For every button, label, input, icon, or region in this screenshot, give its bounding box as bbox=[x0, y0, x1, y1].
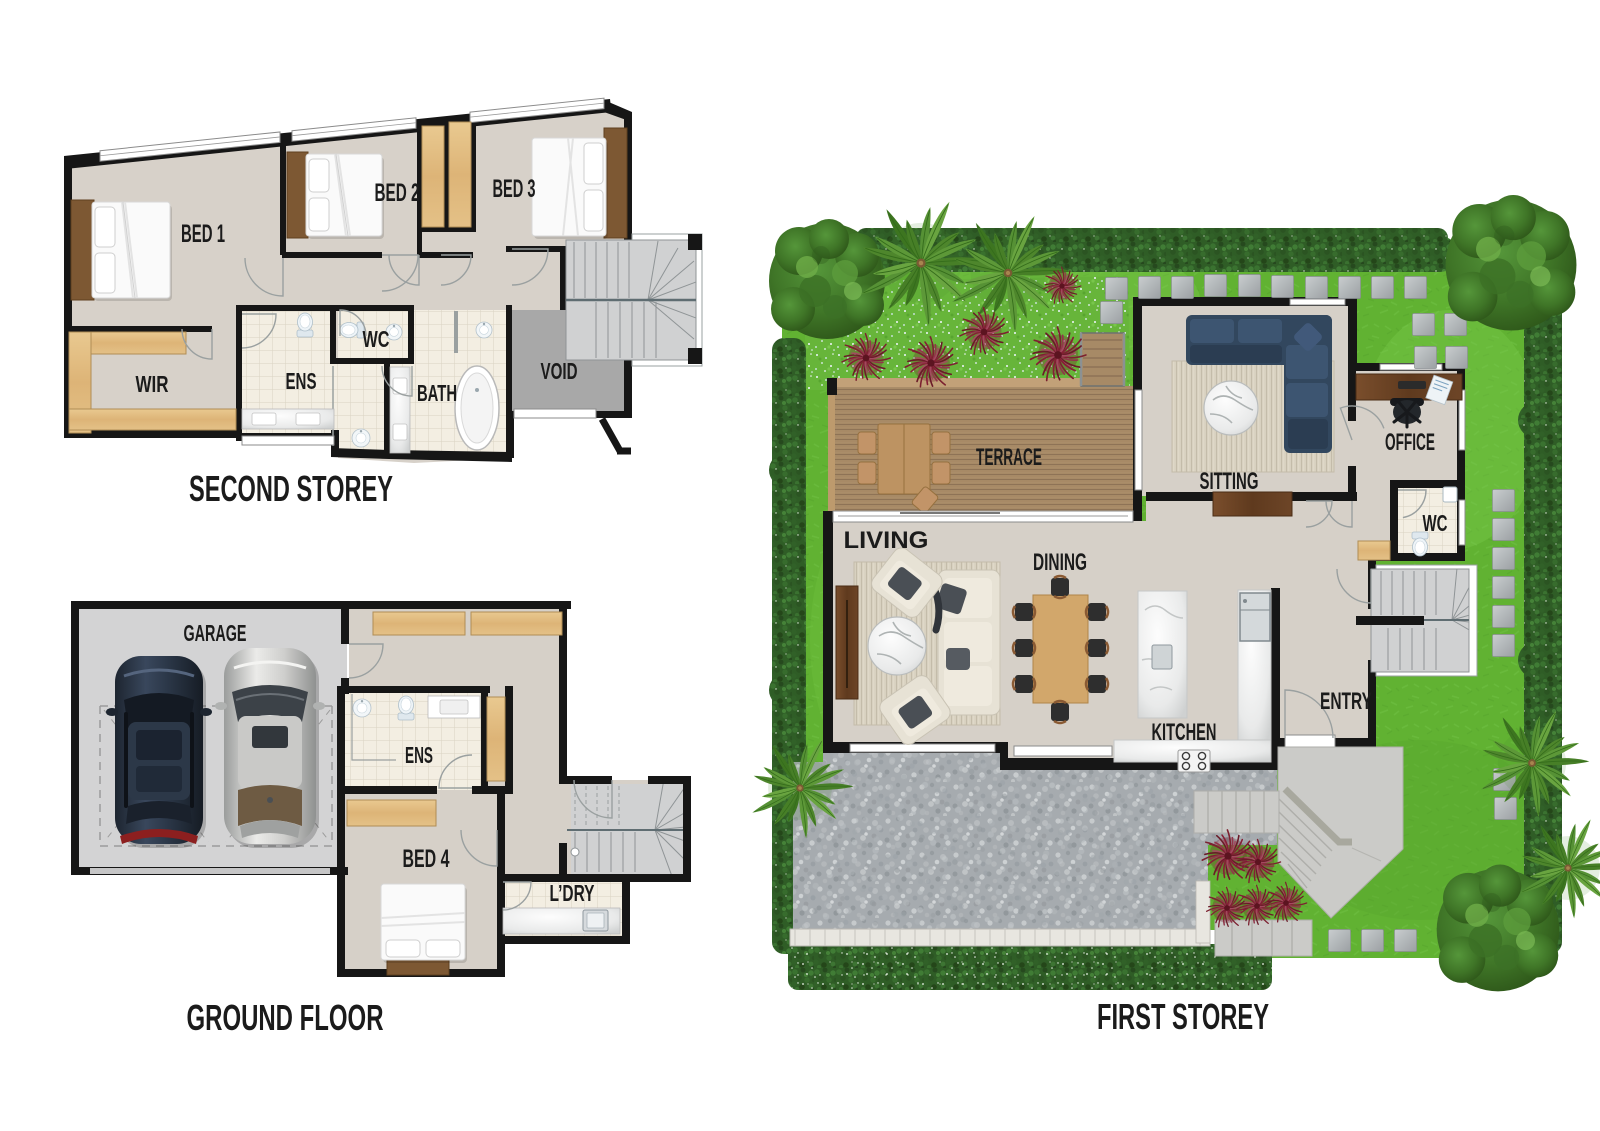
svg-text:BATH: BATH bbox=[417, 380, 457, 406]
svg-text:SITTING: SITTING bbox=[1200, 468, 1259, 495]
svg-text:WC: WC bbox=[363, 326, 390, 352]
svg-text:WIR: WIR bbox=[136, 371, 169, 397]
svg-text:OFFICE: OFFICE bbox=[1385, 429, 1435, 456]
svg-text:L’DRY: L’DRY bbox=[550, 880, 595, 906]
svg-text:TERRACE: TERRACE bbox=[976, 444, 1042, 471]
svg-text:ENS: ENS bbox=[286, 368, 317, 394]
svg-text:BED 3: BED 3 bbox=[493, 175, 536, 203]
svg-text:BED 2: BED 2 bbox=[375, 179, 420, 207]
svg-text:BED 4: BED 4 bbox=[403, 845, 450, 873]
svg-text:WC: WC bbox=[1423, 510, 1448, 536]
svg-text:VOID: VOID bbox=[541, 358, 578, 384]
svg-text:BED 1: BED 1 bbox=[181, 220, 225, 248]
svg-text:ENS: ENS bbox=[405, 742, 433, 768]
svg-text:LIVING: LIVING bbox=[844, 527, 929, 554]
svg-text:SECOND STOREY: SECOND STOREY bbox=[189, 468, 393, 509]
svg-text:GARAGE: GARAGE bbox=[184, 620, 247, 646]
svg-text:KITCHEN: KITCHEN bbox=[1152, 719, 1217, 746]
svg-text:ENTRY: ENTRY bbox=[1320, 688, 1372, 715]
svg-text:GROUND FLOOR: GROUND FLOOR bbox=[187, 997, 384, 1038]
svg-text:FIRST STOREY: FIRST STOREY bbox=[1097, 996, 1269, 1037]
svg-text:DINING: DINING bbox=[1033, 549, 1087, 576]
